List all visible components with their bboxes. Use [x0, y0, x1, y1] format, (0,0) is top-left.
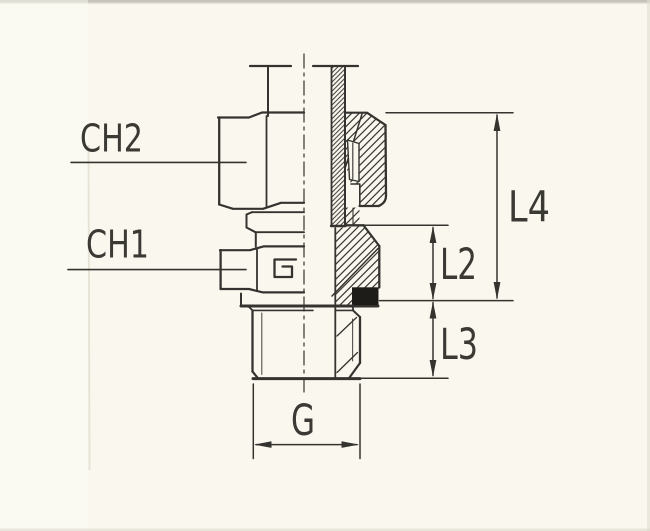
scan-edge-top-soft: [0, 3, 650, 5]
captive-seal-ring: [353, 288, 379, 305]
hex-top-edge: [220, 246, 304, 250]
scan-left-margin: [0, 0, 88, 531]
nut-top-edge: [218, 113, 304, 118]
dimension-label-l2: L2: [440, 240, 477, 290]
nut-ch2: [218, 113, 386, 209]
callout-label-ch1: CH1: [86, 223, 149, 267]
arrowhead-l3-down: [430, 360, 437, 377]
nut-inner-step: [351, 184, 360, 206]
arrowhead-l3-up: [430, 302, 437, 319]
dimension-label-g: G: [291, 396, 315, 446]
arrowhead-g-right: [342, 441, 360, 448]
arrowhead-l4-down: [494, 282, 501, 300]
dimensions: L4 L2 L3 G: [253, 113, 550, 459]
stud-top-right-chamfer: [353, 310, 360, 317]
arrowhead-l4-up: [494, 114, 501, 132]
tube-wall-hatching: [332, 66, 346, 226]
callout-label-ch2: CH2: [80, 117, 143, 161]
scan-edge-top: [0, 0, 650, 3]
scan-crease: [89, 145, 90, 470]
arrowhead-l2-down: [430, 283, 437, 300]
neck-left-edge: [247, 212, 256, 232]
manufacturer-logo-mark: [275, 260, 297, 278]
dimension-label-l3: L3: [440, 320, 478, 370]
scanned-technical-drawing-page: L4 L2 L3 G CH2 CH1: [0, 0, 650, 531]
nut-bottom-edge: [219, 203, 304, 209]
arrowhead-g-left: [254, 441, 272, 448]
arrowhead-l2-up: [430, 226, 437, 243]
fitting-cross-section-drawing: L4 L2 L3 G CH2 CH1: [0, 0, 650, 531]
stud-internal-diagonal-upper: [337, 318, 357, 337]
dimension-label-l4: L4: [508, 183, 550, 233]
hex-bottom-edge: [221, 289, 304, 292]
stud-bottom-right-chamfer: [350, 363, 361, 378]
fitting-body: [220, 208, 379, 378]
body-neck-hatching: [345, 208, 360, 225]
